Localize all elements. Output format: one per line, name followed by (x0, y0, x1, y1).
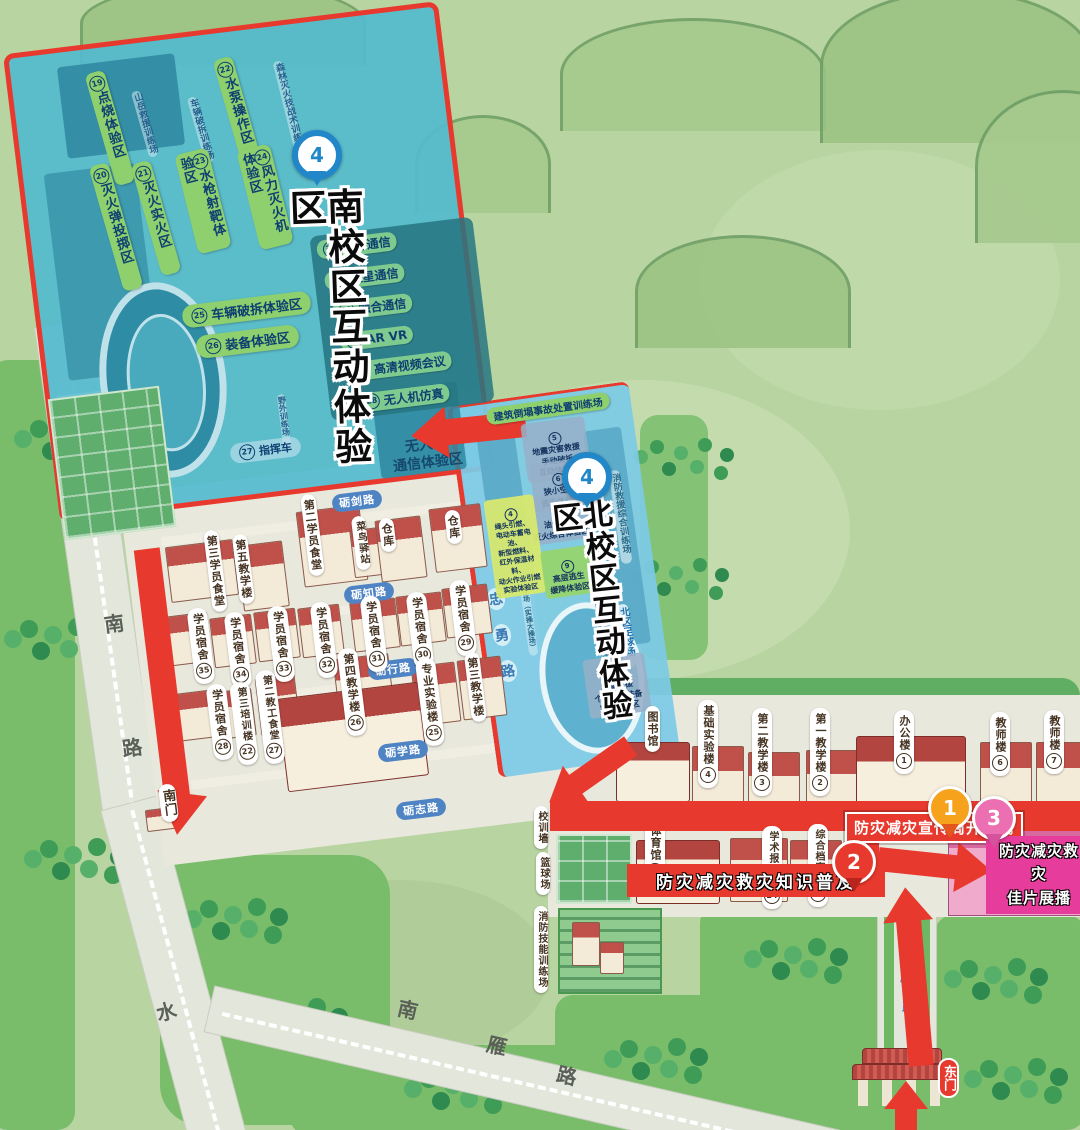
building-number: 32 (318, 656, 336, 674)
map-pin-1: 1 (928, 786, 972, 830)
building-name: 教师楼 (1048, 715, 1061, 751)
building-name: 消防技能训练场 (536, 911, 547, 988)
building-label: 篮球场 (536, 852, 550, 895)
mountain (635, 235, 851, 348)
zone-number: 27 (238, 443, 256, 461)
forest (700, 905, 885, 1020)
pin-number: 3 (987, 806, 1001, 830)
trees (620, 1040, 638, 1058)
gate-name: 东门 (941, 1065, 956, 1091)
arrow-shaft (134, 547, 191, 800)
building-label: 消防技能训练场 (534, 906, 548, 993)
pin-number: 4 (310, 143, 324, 167)
building-name: 第三培训楼 (235, 687, 253, 743)
map-pin-2: 2 (832, 840, 876, 884)
building-number: 29 (457, 634, 475, 652)
building-label: 教师楼6 (990, 712, 1010, 776)
route-arrow-gate (884, 1078, 928, 1130)
pin-number: 2 (847, 850, 861, 874)
building-name: 第二教工食堂 (260, 675, 279, 742)
map-pin-4-north: 4 (562, 452, 612, 502)
forest (935, 915, 1080, 1130)
building-number: 22 (239, 743, 257, 761)
pin-number: 1 (943, 796, 957, 820)
gate-name: 南门 (159, 788, 177, 818)
arrow-shaft (895, 1105, 917, 1130)
building-name: 学员宿舍 (410, 596, 429, 645)
zone-name: 指挥车 (258, 439, 293, 459)
building-name: 办公楼 (898, 715, 911, 751)
building-name: 图书馆 (646, 711, 659, 747)
mountain (560, 18, 826, 131)
trees (40, 840, 58, 858)
pin-number: 4 (580, 465, 594, 489)
building-label: 第一教学楼2 (810, 708, 830, 796)
building-number: 35 (195, 662, 213, 680)
training-tower (572, 922, 600, 966)
building-number: 26 (347, 714, 365, 732)
building-name: 校训墙 (536, 811, 547, 844)
building-number: 6 (992, 755, 1008, 771)
building-name: 仓库 (446, 514, 462, 539)
map-pin-4-south: 4 (292, 130, 342, 180)
banner-text: 防灾减灾救灾知识普及 (656, 873, 856, 893)
road-name: 砺学路 (384, 743, 421, 760)
trees (960, 960, 978, 978)
building-name: 基础实验楼 (702, 705, 715, 765)
building-number: 25 (425, 724, 443, 742)
building-number: 2 (812, 775, 828, 791)
trees (20, 620, 38, 638)
building-number: 7 (1046, 753, 1062, 769)
building-number: 1 (896, 753, 912, 769)
building-number: 33 (275, 660, 293, 678)
building-name: 学员宿舍 (228, 616, 247, 665)
building-label: 办公楼1 (894, 710, 914, 774)
building-label: 教师楼7 (1044, 710, 1064, 774)
east-gate-label: 东门 (938, 1058, 959, 1098)
training-tower (600, 942, 624, 974)
building-label: 图书馆 (645, 706, 660, 752)
building-name: 学员宿舍 (364, 600, 383, 649)
building-name: 第一教学楼 (814, 713, 827, 773)
map-pin-3: 3 (972, 796, 1016, 840)
road-char: 勇 (494, 627, 510, 645)
trees (760, 940, 778, 958)
building-name: 学员宿舍 (191, 612, 210, 661)
arrow-shaft (896, 915, 934, 1067)
trees (30, 420, 48, 438)
zone-number: 26 (204, 337, 222, 355)
trees (650, 440, 664, 454)
building-name: 篮球场 (538, 857, 549, 890)
trees (980, 1060, 998, 1078)
trees (200, 900, 218, 918)
east-basketball-courts (556, 834, 632, 904)
arrow-shaft (877, 847, 959, 879)
building-name: 学员宿舍 (453, 584, 472, 633)
building-number: 31 (368, 650, 386, 668)
south-zone-title: 南校区互动体验区 (286, 187, 370, 489)
building-name: 教师楼 (994, 717, 1007, 753)
road-name: 砺剑路 (338, 493, 375, 510)
banner-text: 防灾减灾救灾 佳片展播 (999, 842, 1079, 907)
road-name: 砺志路 (402, 801, 439, 818)
building-label: 校训墙 (534, 806, 548, 849)
zone-number: 25 (190, 306, 208, 324)
zone-label-28: 28无人机仿真 (357, 383, 451, 413)
basketball-courts (48, 386, 176, 541)
building-number: 28 (214, 738, 232, 756)
campus-map: 19点烧体验区 20灭火弹投掷区 21灭火实火区 22水泵操作区 23水枪射靶体… (0, 0, 1080, 1130)
building-number: 3 (754, 775, 770, 791)
building-label: 基础实验楼4 (698, 700, 718, 788)
building-name: 学员宿舍 (271, 610, 290, 659)
building-name: 学员宿舍 (210, 688, 229, 737)
building-name: 第二教学楼 (756, 713, 769, 773)
zone-name: 高清视频会议 (373, 352, 447, 378)
zone-name: 绳头引燃、 电动车蓄电池、 新型燃料、 红外保温材料、 动火作业引燃 实验体验区 (494, 519, 541, 595)
zone-name: 无人机仿真 (383, 385, 445, 409)
building-name: 仓库 (380, 522, 396, 547)
building-label: 第二教学楼3 (752, 708, 772, 796)
building-number: 4 (700, 767, 716, 783)
building-name: 学员宿舍 (314, 606, 333, 655)
building-number: 27 (265, 742, 283, 760)
zone-name: AR VR (365, 327, 408, 346)
